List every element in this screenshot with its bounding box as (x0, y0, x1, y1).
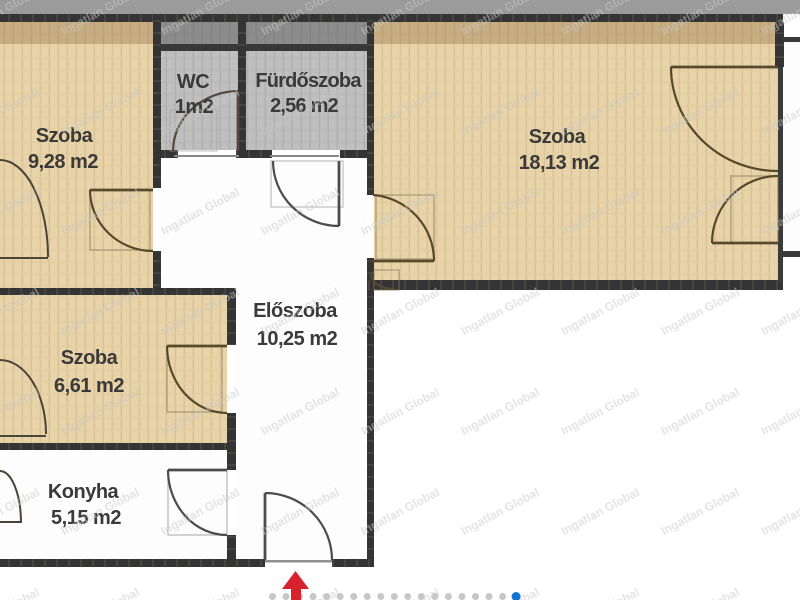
svg-text:9,28 m2: 9,28 m2 (28, 151, 98, 173)
svg-text:18,13 m2: 18,13 m2 (519, 152, 600, 174)
svg-text:WC: WC (177, 71, 209, 93)
svg-text:Fürdőszoba: Fürdőszoba (255, 70, 362, 92)
svg-text:Szoba: Szoba (61, 347, 119, 369)
svg-text:6,61 m2: 6,61 m2 (54, 375, 124, 397)
